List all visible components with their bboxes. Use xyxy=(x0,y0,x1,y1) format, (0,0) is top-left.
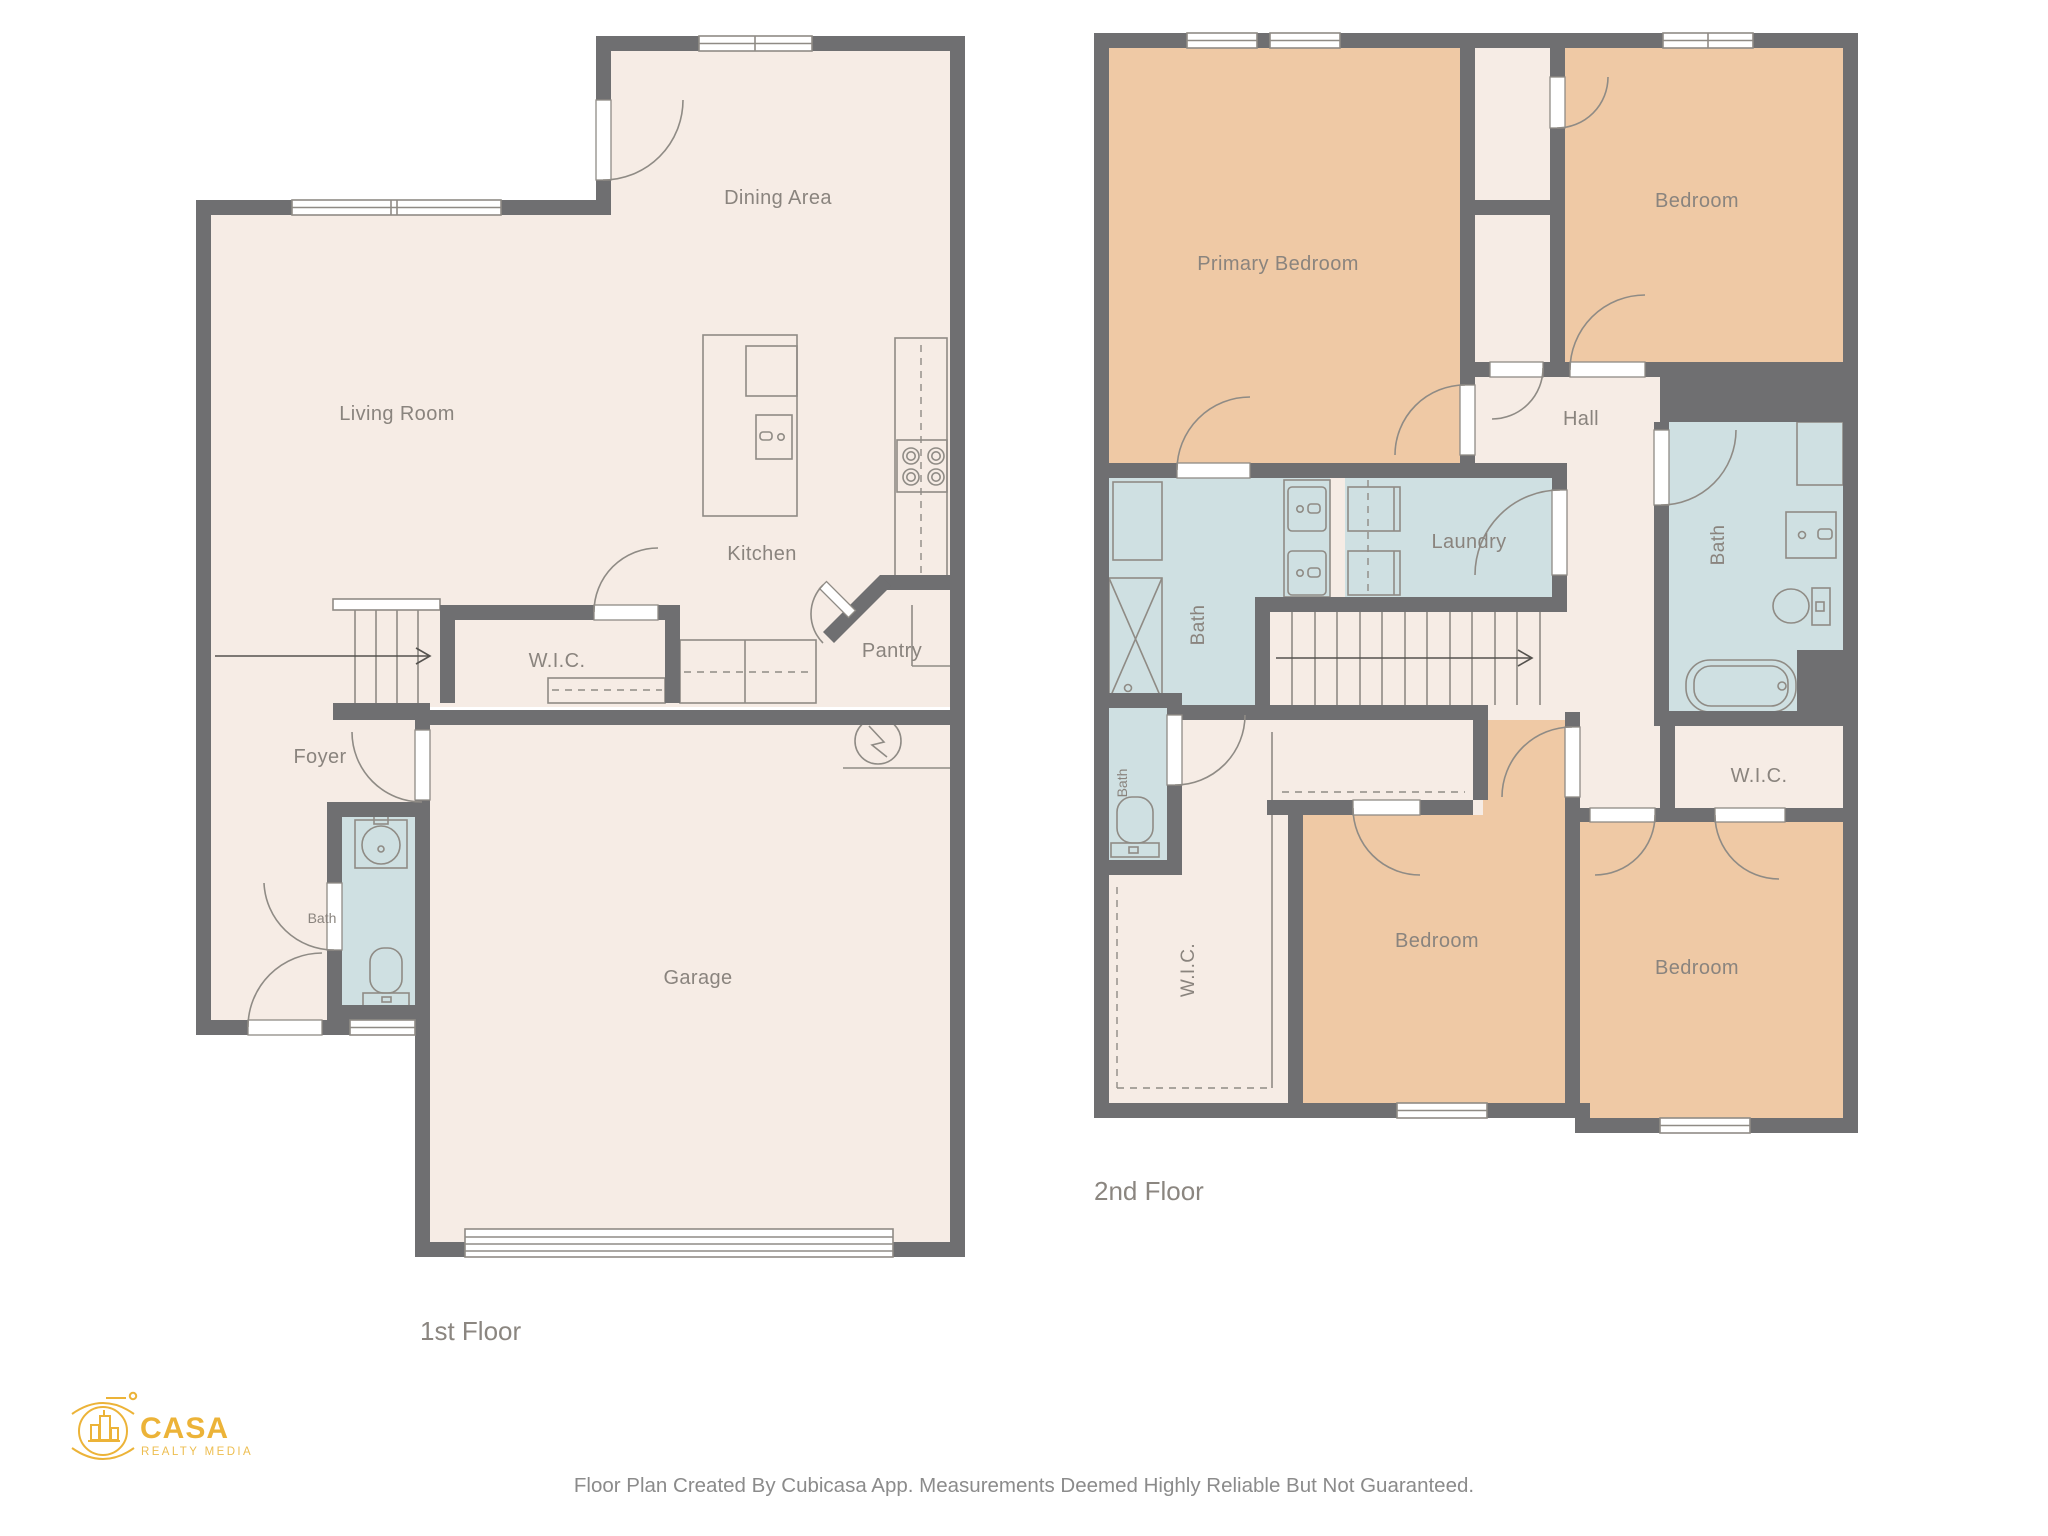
label-laundry: Laundry xyxy=(1431,531,1506,553)
floor-plan-page: Living Room Dining Area Kitchen W.I.C. P… xyxy=(0,0,2048,1536)
label-bedroom-bottom-middle: Bedroom xyxy=(1395,930,1479,952)
floor-plan-drawing: Living Room Dining Area Kitchen W.I.C. P… xyxy=(0,0,2048,1536)
footer-disclaimer: Floor Plan Created By Cubicasa App. Meas… xyxy=(574,1474,1474,1497)
window-bedroom-top-right xyxy=(1663,33,1753,48)
casa-realty-media-logo: CASA REALTY MEDIA xyxy=(72,1393,253,1459)
label-hall: Hall xyxy=(1563,408,1599,430)
label-living-room: Living Room xyxy=(339,403,455,425)
logo-buildings-icon xyxy=(88,1410,120,1441)
label-bath-first-floor: Bath xyxy=(308,910,337,926)
logo-icon xyxy=(72,1393,136,1459)
window-primary-2 xyxy=(1270,33,1340,48)
label-wic-right: W.I.C. xyxy=(1731,765,1788,787)
label-primary-bedroom: Primary Bedroom xyxy=(1197,253,1359,275)
logo-tagline: REALTY MEDIA xyxy=(141,1446,253,1458)
label-wic-left: W.I.C. xyxy=(1178,943,1199,997)
label-bath-right: Bath xyxy=(1708,525,1729,566)
label-first-floor: 1st Floor xyxy=(420,1316,521,1346)
label-second-floor: 2nd Floor xyxy=(1094,1176,1204,1206)
window-bedroom-bottom-middle xyxy=(1397,1103,1487,1118)
window-primary-1 xyxy=(1187,33,1257,48)
label-wic-first-floor: W.I.C. xyxy=(529,650,586,672)
window-bedroom-bottom-right xyxy=(1660,1118,1750,1133)
label-bedroom-bottom-right: Bedroom xyxy=(1655,957,1739,979)
label-pantry: Pantry xyxy=(862,640,922,662)
window-front xyxy=(350,1020,415,1035)
logo-brand-name: CASA xyxy=(140,1412,229,1445)
window-dining-area xyxy=(699,36,812,51)
garage-door xyxy=(465,1229,893,1257)
label-bedroom-top-right: Bedroom xyxy=(1655,190,1739,212)
label-bath-small: Bath xyxy=(1114,769,1130,798)
second-floor-plan: Primary Bedroom Bedroom Hall Laundry Bat… xyxy=(1094,33,1858,1206)
room-bath-first-floor xyxy=(342,817,415,1005)
label-kitchen: Kitchen xyxy=(727,543,797,565)
first-floor-plan: Living Room Dining Area Kitchen W.I.C. P… xyxy=(196,36,965,1346)
label-foyer: Foyer xyxy=(293,746,346,768)
label-garage: Garage xyxy=(663,967,732,989)
label-bath-hall: Bath xyxy=(1188,605,1209,646)
window-living-room xyxy=(292,200,501,215)
label-dining-area: Dining Area xyxy=(724,187,832,209)
